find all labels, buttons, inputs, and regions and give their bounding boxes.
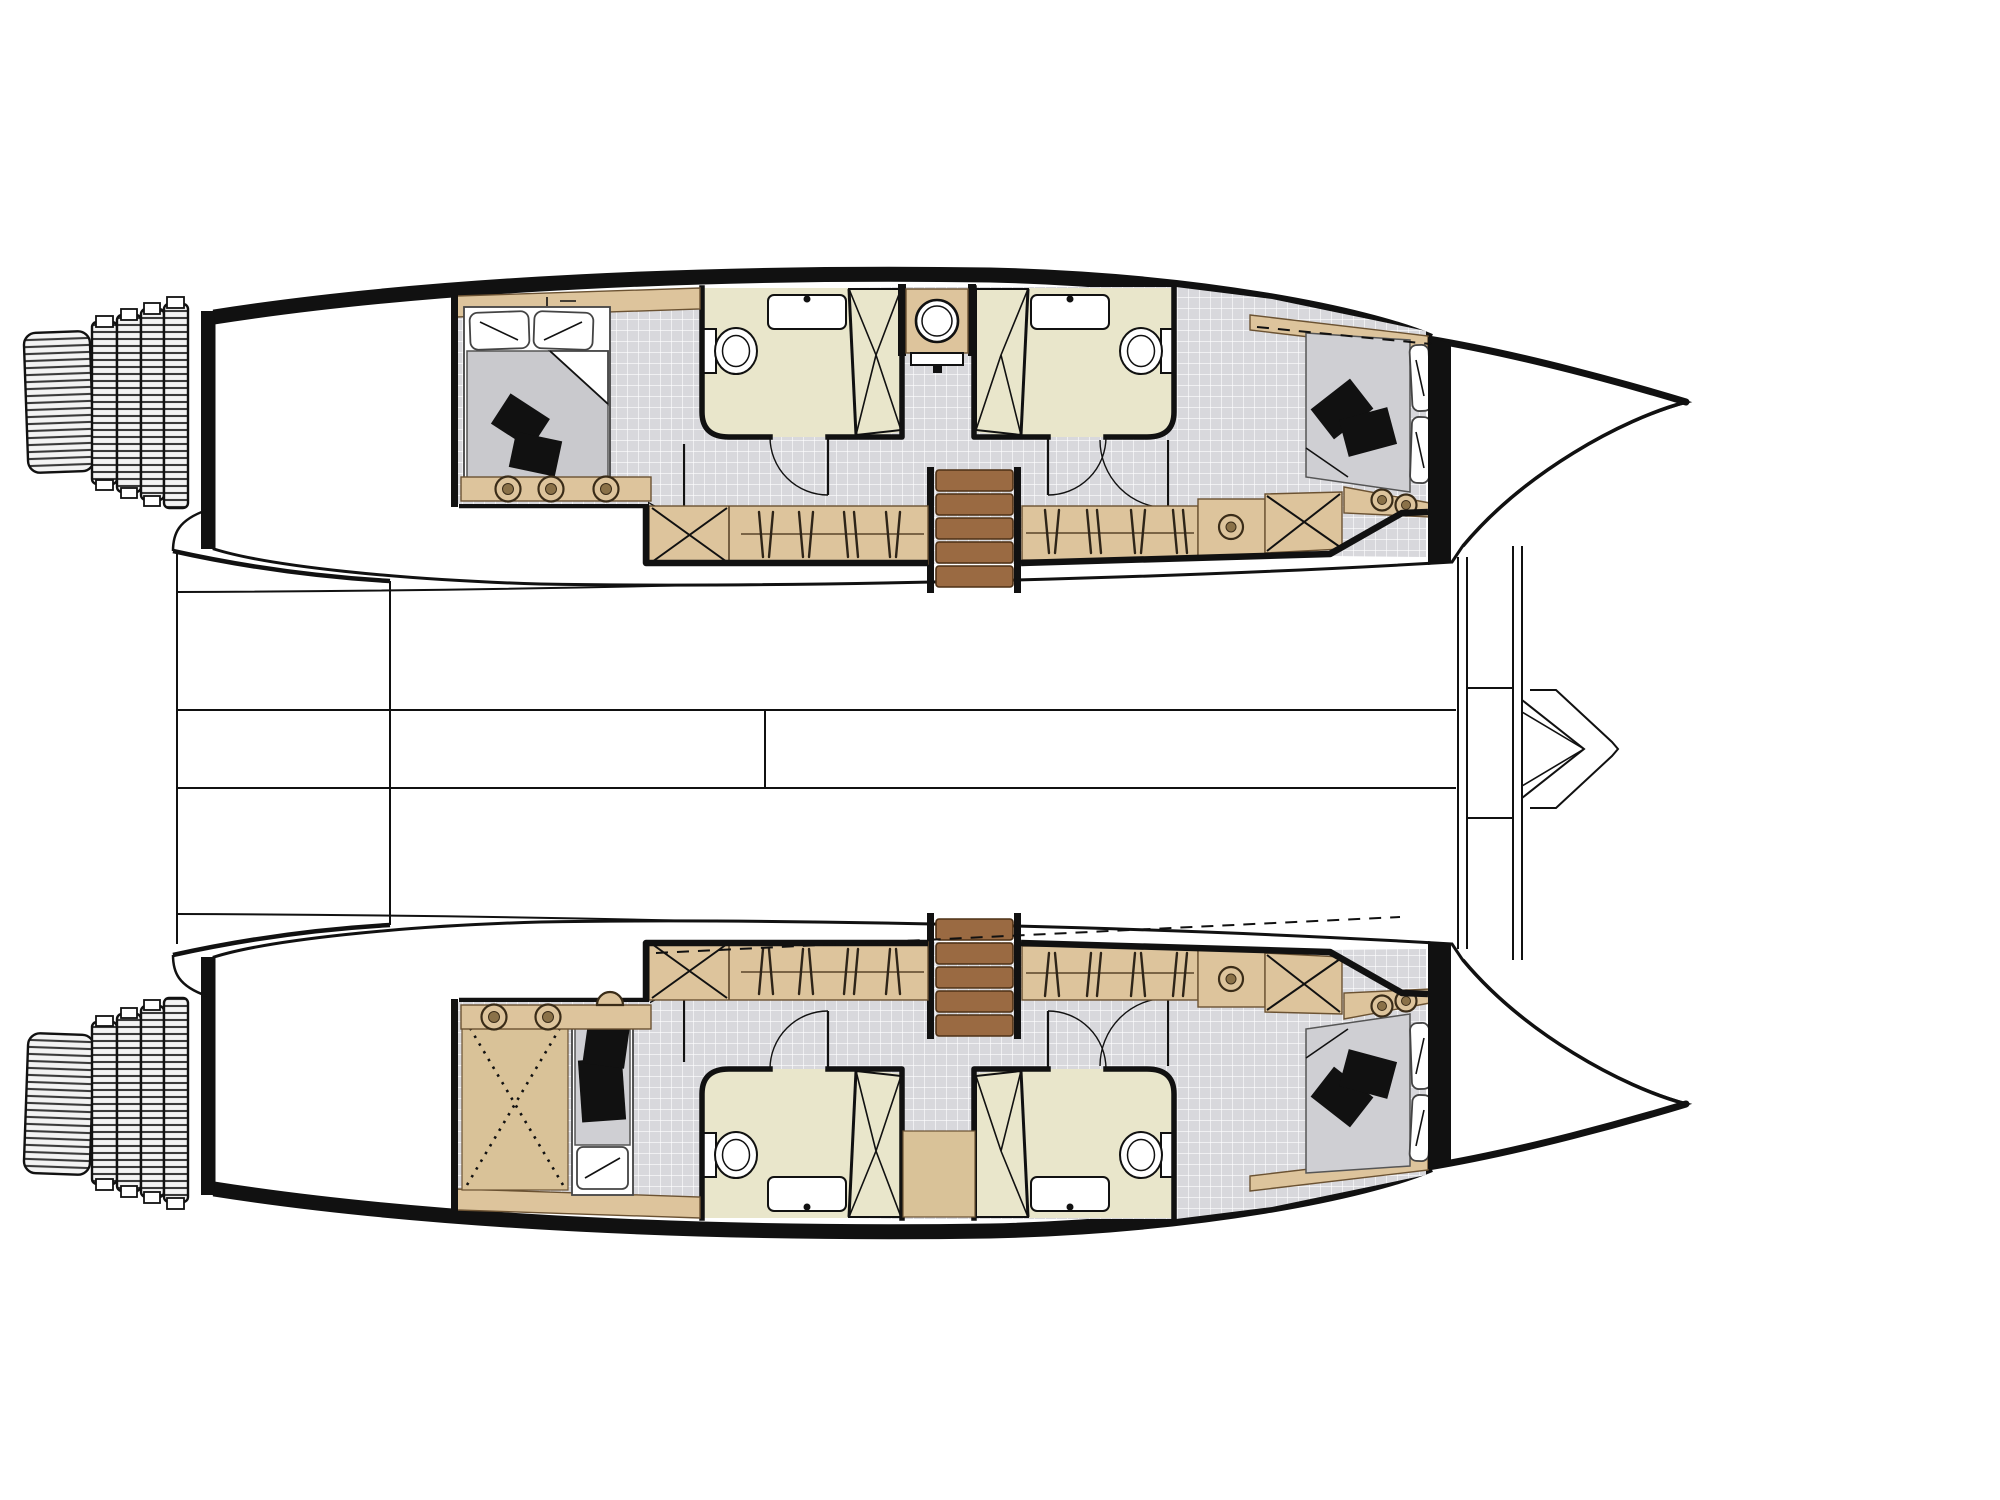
technical-area-crossed [462,1018,568,1190]
bridge-deck [177,546,1618,960]
catamaran-floor-plan-page [0,0,2000,1500]
stern-steps-port [24,297,188,508]
landing-patch [903,1131,975,1217]
starboard-hull [24,913,1687,1237]
bowsprit-seagull-striker [1522,690,1618,808]
port-hull [24,269,1687,593]
forward-crossbeam [1458,546,1618,960]
stern-steps-starboard [24,998,188,1209]
single-berth [572,1015,633,1195]
catamaran-floor-plan [0,0,2000,1500]
double-bed [464,307,610,479]
